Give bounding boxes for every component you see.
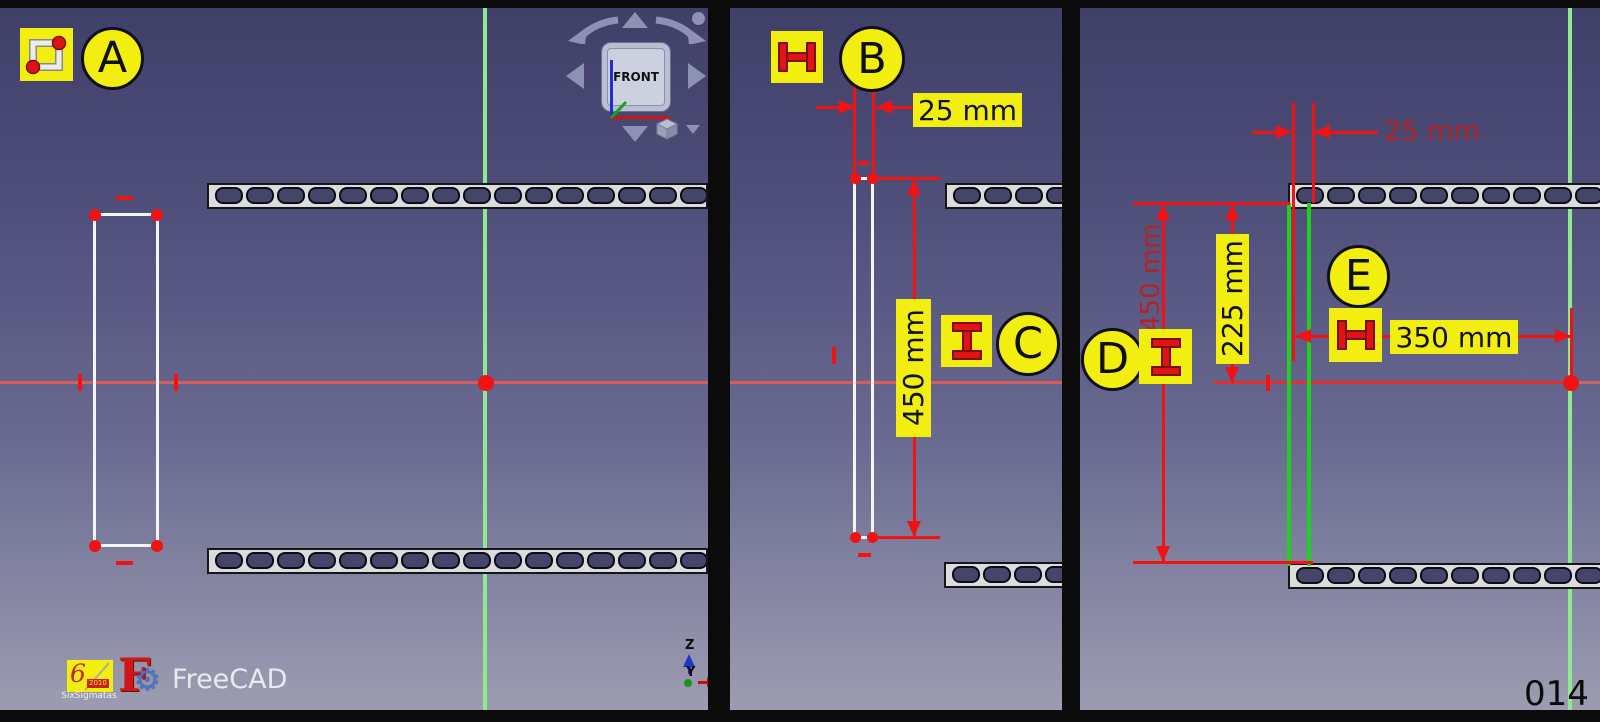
top-border — [0, 0, 1600, 8]
beam-slot-hole — [1482, 567, 1510, 584]
beam-slot-hole — [215, 552, 243, 569]
beam-slot-hole — [1451, 567, 1479, 584]
triad-z-label: Z — [685, 638, 694, 653]
vertical-distance-tool-icon — [1139, 329, 1192, 384]
slotted-beam-bottom[interactable] — [944, 562, 1066, 588]
beam-slot-hole — [556, 552, 584, 569]
beam-slot-hole — [1575, 567, 1600, 584]
beam-slot-hole — [494, 187, 522, 204]
axis-tick-mark — [1266, 375, 1270, 391]
beam-slot-hole — [1420, 187, 1448, 204]
beam-slot-hole — [401, 187, 429, 204]
dimension-arrow — [1295, 329, 1311, 343]
beam-slot-hole — [1482, 187, 1510, 204]
i-beam-glyph — [1143, 334, 1189, 380]
dimension-arrow — [1276, 125, 1292, 139]
dimension-arrow — [907, 179, 921, 195]
sketch-line-top[interactable] — [93, 213, 159, 216]
beam-slot-hole — [1296, 567, 1324, 584]
sketch-vertex[interactable] — [867, 532, 878, 543]
step-badge-e: E — [1327, 245, 1390, 308]
triad-x-label: X — [711, 668, 721, 683]
sketch-line-right[interactable] — [156, 213, 159, 547]
freecad-logo-gear-icon: ⚙ — [134, 666, 161, 696]
beam-slot-hole — [952, 566, 980, 583]
dimension-arrow — [839, 100, 855, 114]
beam-slot-hole — [1544, 187, 1572, 204]
step-letter: C — [1013, 323, 1043, 366]
dimension-arrow — [1225, 204, 1239, 220]
beam-slot-hole — [1420, 567, 1448, 584]
beam-slot-hole — [277, 187, 305, 204]
beam-slot-hole — [1544, 567, 1572, 584]
slotted-beam-top[interactable] — [207, 183, 708, 209]
beam-slot-hole — [246, 187, 274, 204]
rectangle-tool-icon — [20, 28, 73, 81]
beam-slot-hole — [494, 552, 522, 569]
beam-slot-hole — [308, 552, 336, 569]
origin-point[interactable] — [1563, 375, 1579, 391]
dimension-extension-line — [1312, 103, 1315, 203]
dimension-extension-line — [1570, 308, 1573, 383]
dimension-arrow — [907, 521, 921, 537]
horizontal-axis-line[interactable] — [0, 381, 708, 384]
dimension-arrow — [1156, 204, 1170, 220]
dimension-value-label[interactable]: 225 mm — [1216, 234, 1249, 364]
beam-slot-hole — [984, 187, 1012, 204]
vertical-axis-line[interactable] — [483, 8, 487, 710]
beam-slot-hole — [1327, 187, 1355, 204]
axis-tick-mark — [174, 374, 178, 391]
axis-tick-mark — [78, 374, 82, 391]
navcube-arrow-left[interactable] — [566, 63, 584, 89]
beam-slot-hole — [432, 187, 460, 204]
step-badge-d: D — [1081, 328, 1144, 391]
dimension-line — [1252, 131, 1277, 134]
dimension-arrow — [876, 100, 892, 114]
i-beam-glyph — [944, 318, 990, 364]
beam-slot-hole — [618, 187, 646, 204]
sixsigmatas-year: 2010 — [87, 679, 109, 688]
tutorial-slide: A FRONT 6 2010 SixSigmatas F ⚙ FreeCAD Z — [0, 0, 1600, 722]
page-number: 014 — [1524, 674, 1589, 714]
sixsigmatas-logo: 6 2010 — [66, 659, 114, 693]
horizontal-constraint-mark — [858, 161, 869, 165]
panel-divider — [1062, 0, 1080, 722]
slotted-beam-bottom[interactable] — [207, 548, 708, 574]
beam-slot-hole — [401, 552, 429, 569]
beam-slot-hole — [587, 187, 615, 204]
beam-slot-hole — [953, 187, 981, 204]
origin-point[interactable] — [478, 375, 494, 391]
dimension-arrow — [1156, 546, 1170, 562]
step-letter: D — [1096, 338, 1129, 381]
beam-slot-hole — [1327, 567, 1355, 584]
sixsigmatas-label: SixSigmatas — [58, 691, 120, 701]
step-letter: E — [1345, 255, 1372, 298]
sketch-vertex[interactable] — [867, 173, 878, 184]
dimension-extension-line — [1292, 103, 1295, 361]
beam-slot-hole — [649, 187, 677, 204]
horizontal-distance-tool-icon — [771, 31, 823, 83]
h-beam-glyph — [774, 34, 820, 80]
beam-slot-hole — [1358, 567, 1386, 584]
beam-slot-hole — [1575, 187, 1600, 204]
beam-slot-hole — [246, 552, 274, 569]
dimension-arrow — [1225, 367, 1239, 383]
sketch-line-left[interactable] — [853, 177, 856, 539]
navcube-corner-dot[interactable] — [692, 12, 705, 25]
navcube-arrow-right[interactable] — [688, 63, 706, 89]
dimension-value-label[interactable]: 450 mm — [1136, 222, 1166, 332]
triad-y-dot — [684, 679, 692, 687]
beam-slot-hole — [463, 552, 491, 569]
beam-slot-hole — [1015, 187, 1043, 204]
sketch-line-left-constrained[interactable] — [1287, 203, 1291, 566]
sketch-vertex[interactable] — [151, 540, 163, 552]
slotted-beam-top[interactable] — [945, 183, 1066, 209]
step-badge-a: A — [81, 27, 144, 90]
beam-slot-hole — [370, 552, 398, 569]
step-letter: B — [857, 38, 887, 81]
beam-slot-hole — [432, 552, 460, 569]
beam-slot-hole — [1451, 187, 1479, 204]
beam-slot-hole — [308, 187, 336, 204]
sketch-vertex[interactable] — [89, 209, 101, 221]
bottom-border — [0, 710, 1600, 722]
beam-slot-hole — [339, 187, 367, 204]
vertical-constraint-mark — [832, 347, 836, 364]
sketch-line-left[interactable] — [93, 213, 96, 547]
sketch-vertex[interactable] — [850, 532, 861, 543]
horizontal-constraint-mark — [858, 553, 871, 557]
isometric-cube-icon[interactable] — [653, 116, 681, 142]
step-badge-b: B — [839, 26, 905, 92]
navcube-front-label: FRONT — [613, 70, 659, 84]
horizontal-distance-tool-icon — [1329, 308, 1382, 362]
step-letter: A — [98, 37, 127, 80]
beam-slot-hole — [1014, 566, 1042, 583]
freecad-app-name: FreeCAD — [172, 664, 287, 695]
beam-slot-hole — [525, 552, 553, 569]
navcube-menu-arrow[interactable] — [686, 125, 700, 134]
panel-divider — [708, 0, 730, 722]
beam-slot-hole — [680, 187, 708, 204]
horizontal-constraint-mark — [116, 561, 133, 565]
sketch-vertex[interactable] — [89, 540, 101, 552]
sketch-vertex[interactable] — [151, 209, 163, 221]
sketch-line-right-constrained[interactable] — [1307, 203, 1311, 566]
beam-slot-hole — [339, 552, 367, 569]
dimension-value-label[interactable]: 450 mm — [896, 299, 931, 437]
dimension-arrow — [1314, 125, 1330, 139]
navcube-arrow-down[interactable] — [622, 126, 648, 142]
beam-slot-hole — [277, 552, 305, 569]
beam-slot-hole — [983, 566, 1011, 583]
vertical-distance-tool-icon — [941, 315, 992, 367]
dimension-value-label[interactable]: 350 mm — [1390, 320, 1518, 354]
beam-slot-hole — [1389, 187, 1417, 204]
dimension-arrow — [1555, 329, 1571, 343]
navcube-y-axis — [606, 98, 632, 122]
dimension-value-label[interactable]: 25 mm — [1384, 116, 1480, 147]
beam-slot-hole — [1513, 567, 1541, 584]
beam-slot-hole — [370, 187, 398, 204]
horizontal-constraint-mark — [116, 196, 133, 200]
sketch-line-bottom[interactable] — [93, 544, 159, 547]
viewport-panel-1[interactable] — [0, 8, 708, 710]
step-badge-c: C — [996, 312, 1060, 376]
beam-slot-hole — [618, 552, 646, 569]
slotted-beam-top[interactable] — [1288, 183, 1600, 209]
navcube-arrow-up[interactable] — [622, 12, 648, 28]
beam-slot-hole — [525, 187, 553, 204]
sketch-vertex[interactable] — [850, 173, 861, 184]
dimension-value-label[interactable]: 25 mm — [913, 93, 1022, 127]
beam-slot-hole — [1296, 187, 1324, 204]
beam-slot-hole — [649, 552, 677, 569]
beam-slot-hole — [587, 552, 615, 569]
beam-slot-hole — [215, 187, 243, 204]
slotted-beam-bottom[interactable] — [1288, 563, 1600, 589]
h-beam-glyph — [1333, 312, 1379, 358]
dimension-extension-line — [872, 86, 875, 179]
beam-slot-hole — [1389, 567, 1417, 584]
beam-slot-hole — [556, 187, 584, 204]
rectangle-sketch-glyph — [24, 32, 69, 77]
beam-slot-hole — [680, 552, 708, 569]
triad-y-label: Y — [686, 665, 695, 680]
sketch-line-right[interactable] — [871, 177, 874, 539]
beam-slot-hole — [1358, 187, 1386, 204]
beam-slot-hole — [1513, 187, 1541, 204]
beam-slot-hole — [463, 187, 491, 204]
